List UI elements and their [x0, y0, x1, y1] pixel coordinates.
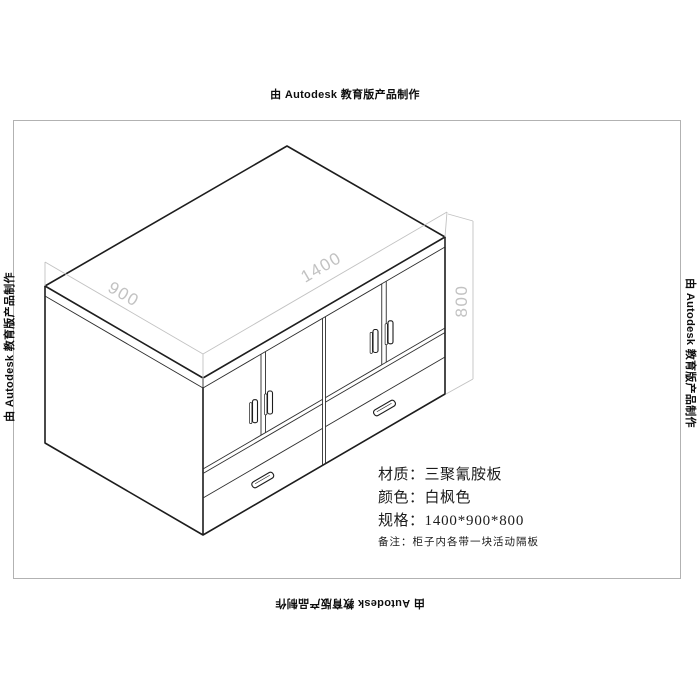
door-handle [373, 330, 378, 353]
cabinet-drawing: 900 1400 800 [0, 0, 700, 700]
material-value: 三聚氰胺板 [425, 466, 503, 483]
size-label: 规格： [378, 512, 425, 529]
drawer-handle [251, 471, 275, 489]
door-handle [268, 391, 273, 414]
width-dimension-label: 1400 [298, 248, 345, 286]
door-handle-shadow [370, 332, 372, 353]
depth-dimension-label: 900 [105, 278, 143, 311]
door-handle-shadow [250, 403, 252, 424]
drawer-handle [373, 399, 397, 417]
top-slab-band [45, 247, 445, 388]
center-divider [323, 317, 326, 466]
color-value: 白枫色 [425, 489, 472, 506]
spec-row-note: 备注：柜子内各带一块活动隔板 [378, 537, 539, 548]
door-handle-shadow [385, 324, 387, 345]
spec-row-material: 材质：三聚氰胺板 [378, 467, 539, 482]
spec-block: 材质：三聚氰胺板 颜色：白枫色 规格：1400*900*800 备注：柜子内各带… [378, 467, 539, 556]
size-value: 1400*900*800 [425, 513, 525, 529]
material-label: 材质： [378, 466, 425, 483]
note-value: 柜子内各带一块活动隔板 [413, 536, 540, 548]
door-handle [388, 321, 393, 344]
height-dimension-label: 800 [452, 285, 471, 318]
spec-row-size: 规格：1400*900*800 [378, 513, 539, 529]
door-handle-shadow [265, 394, 267, 415]
spec-row-color: 颜色：白枫色 [378, 490, 539, 505]
left-unit-door-stiles [261, 352, 266, 436]
depth-dimension-line [45, 262, 203, 354]
note-label: 备注： [378, 536, 413, 548]
right-unit-door-stiles [382, 281, 387, 365]
width-dimension-line [203, 212, 447, 379]
door-handle [253, 400, 258, 423]
color-label: 颜色： [378, 489, 425, 506]
